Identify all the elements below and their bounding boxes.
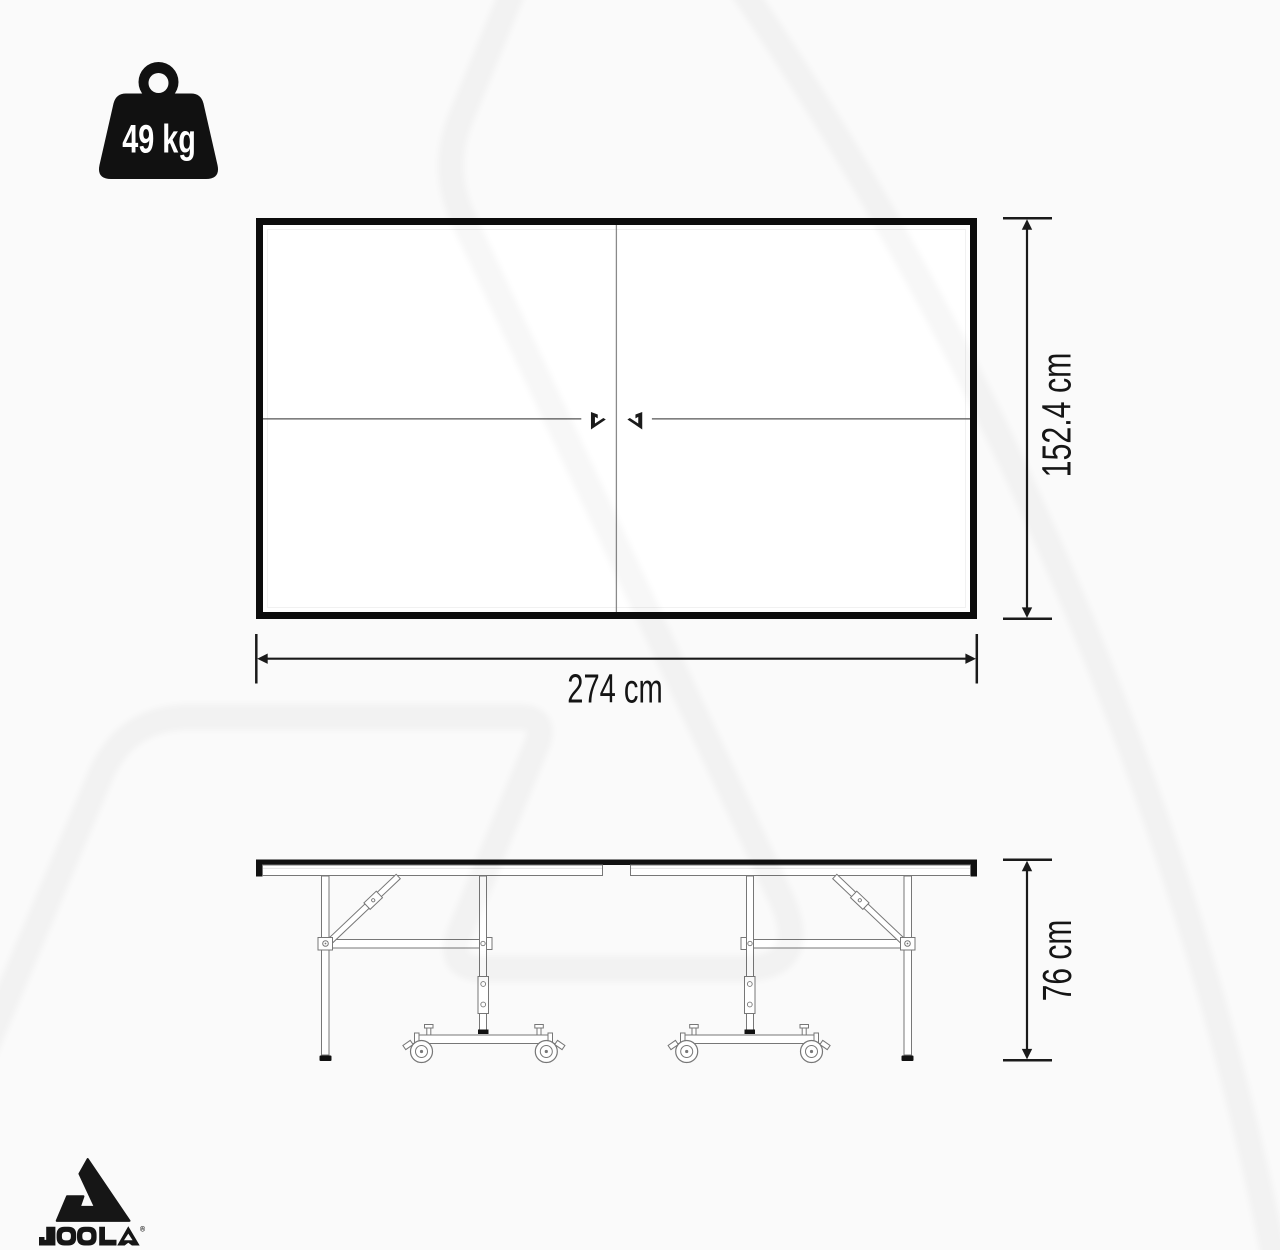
- svg-text:®: ®: [140, 1226, 146, 1234]
- svg-text:76 cm: 76 cm: [1034, 920, 1080, 1001]
- svg-text:274 cm: 274 cm: [567, 666, 662, 712]
- svg-text:152.4 cm: 152.4 cm: [1033, 353, 1080, 478]
- svg-text:49 kg: 49 kg: [122, 117, 196, 162]
